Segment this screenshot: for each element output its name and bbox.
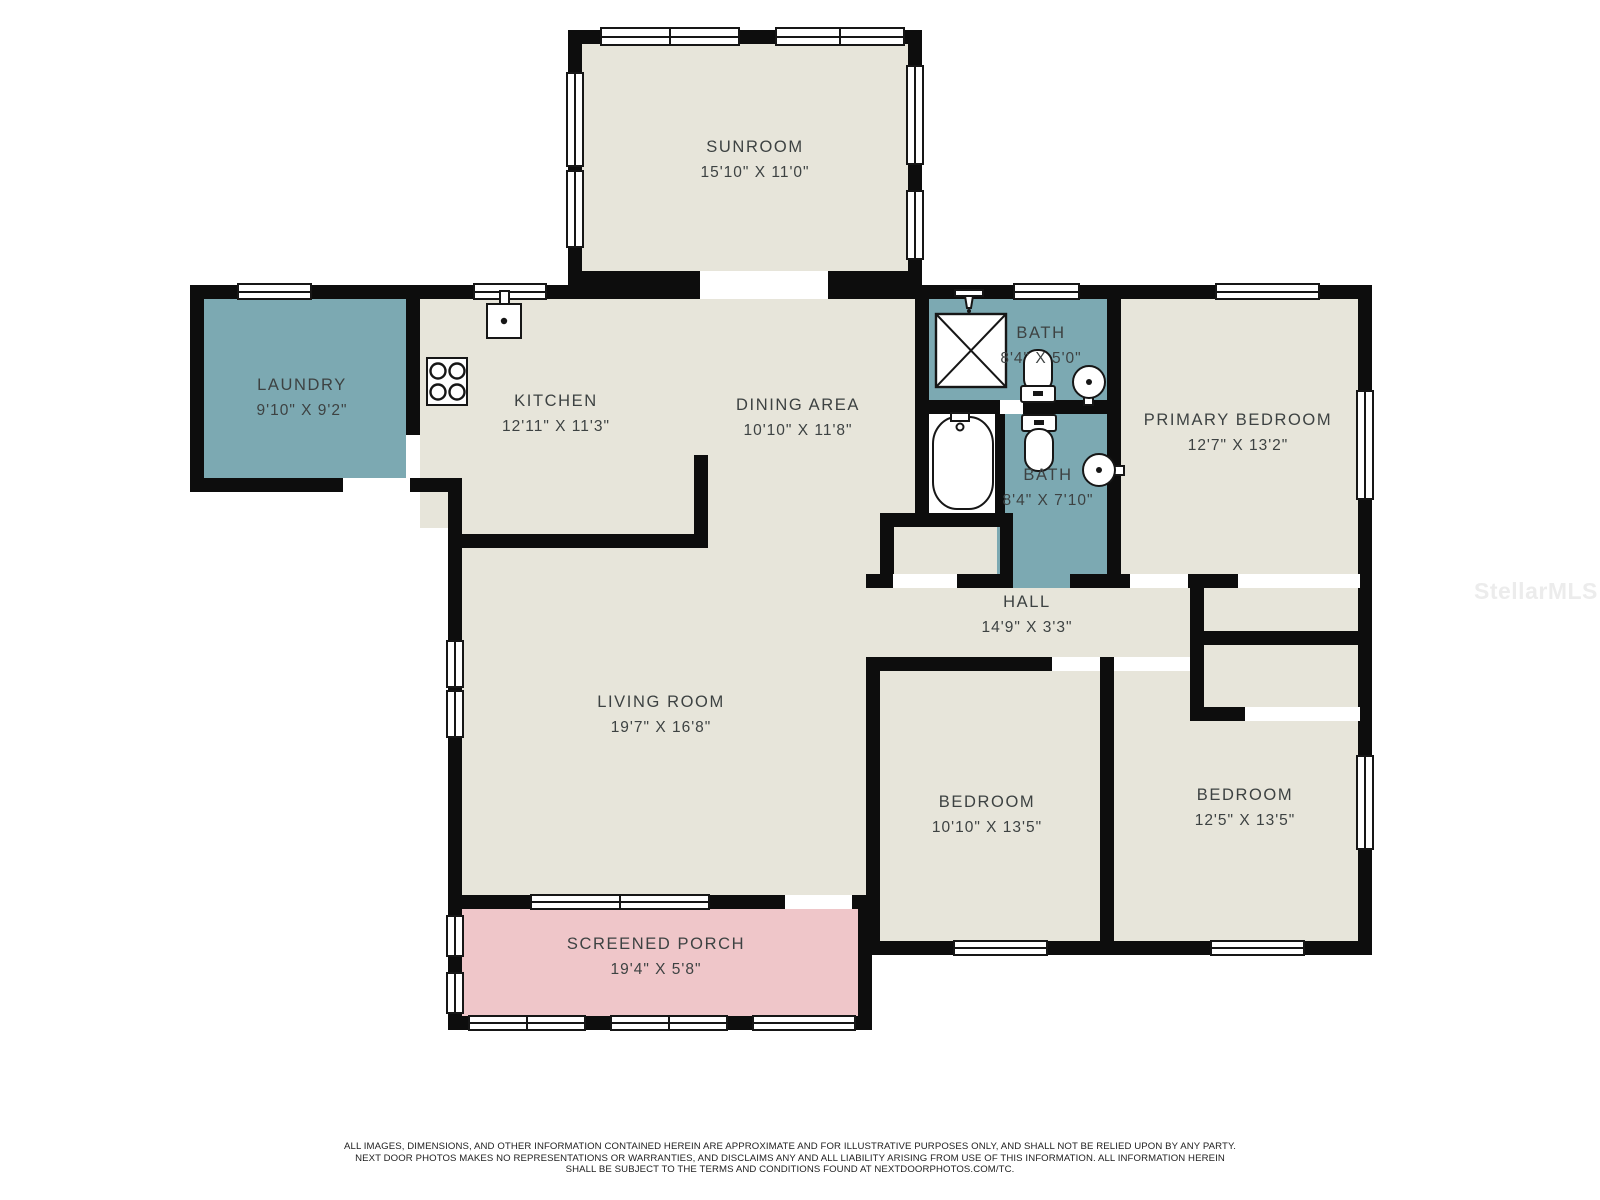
room-dims: 9'10" X 9'2" [257, 402, 348, 420]
window-mullion [619, 896, 621, 908]
room-label-sunroom: SUNROOM15'10" X 11'0" [700, 138, 809, 182]
window-glass-line [574, 74, 576, 165]
window-glass-line [1015, 291, 1078, 293]
door-opening [406, 437, 420, 478]
room-label-bath-main: BATH8'4" X 7'10" [1003, 466, 1094, 510]
wall-segment [457, 534, 708, 548]
door-opening [700, 271, 828, 299]
room-name: KITCHEN [502, 392, 610, 411]
wall-segment [957, 574, 1000, 588]
door-opening [1238, 574, 1360, 588]
room-name: BATH [1003, 466, 1094, 485]
door-opening [1245, 707, 1360, 721]
window-glass-line [454, 917, 456, 955]
window-glass-line [914, 67, 916, 163]
window-glass-line [454, 974, 456, 1012]
room-name: BATH [1000, 324, 1081, 343]
window-symbol [468, 1015, 586, 1031]
window-symbol [1215, 283, 1320, 300]
room-name: SUNROOM [700, 138, 809, 157]
room-dims: 15'10" X 11'0" [700, 164, 809, 182]
room-dims: 10'10" X 11'8" [736, 422, 860, 440]
wall-segment [1358, 285, 1372, 955]
disclaimer-text: ALL IMAGES, DIMENSIONS, AND OTHER INFORM… [0, 1141, 1580, 1176]
room-name: HALL [982, 593, 1073, 612]
closet-1-floor [1202, 588, 1358, 631]
room-label-kitchen: KITCHEN12'11" X 11'3" [502, 392, 610, 436]
window-glass-line [1212, 947, 1303, 949]
door-opening [1052, 657, 1100, 671]
window-glass-line [754, 1022, 854, 1024]
wall-segment [866, 574, 893, 588]
window-glass-line [914, 192, 916, 258]
disclaimer-line-3: SHALL BE SUBJECT TO THE TERMS AND CONDIT… [0, 1164, 1580, 1176]
window-symbol [446, 640, 464, 688]
window-symbol [446, 915, 464, 957]
room-name: DINING AREA [736, 396, 860, 415]
bath-main-doorway [1013, 574, 1070, 588]
window-mullion [526, 1017, 528, 1029]
window-glass-line [1364, 392, 1366, 498]
tub-niche-floor [929, 414, 997, 513]
window-glass-line [454, 692, 456, 736]
window-symbol [446, 690, 464, 738]
room-label-bedroom-2: BEDROOM12'5" X 13'5" [1195, 786, 1296, 830]
room-dims: 12'5" X 13'5" [1195, 812, 1296, 830]
window-symbol [473, 283, 547, 300]
window-mullion [669, 29, 671, 44]
wall-segment [1100, 657, 1114, 955]
window-glass-line [955, 947, 1046, 949]
room-dims: 8'4" X 7'10" [1003, 492, 1094, 510]
wall-segment [880, 513, 1013, 527]
window-mullion [668, 1017, 670, 1029]
room-dims: 12'11" X 11'3" [502, 418, 610, 436]
room-label-bath-top: BATH8'4" X 5'0" [1000, 324, 1081, 368]
wall-segment [1193, 707, 1245, 721]
door-opening [343, 478, 410, 492]
wall-segment [1000, 513, 1013, 588]
room-name: BEDROOM [932, 793, 1042, 812]
room-dims: 10'10" X 13'5" [932, 819, 1042, 837]
wall-segment [866, 657, 1052, 671]
room-dims: 19'4" X 5'8" [567, 961, 745, 979]
door-opening [1114, 657, 1190, 671]
window-symbol [1210, 940, 1305, 956]
door-opening [1130, 574, 1188, 588]
floor-plan: SUNROOM15'10" X 11'0" LAUNDRY9'10" X 9'2… [0, 0, 1600, 1200]
window-symbol [1356, 390, 1374, 500]
wall-segment [1107, 299, 1121, 574]
window-symbol [775, 27, 905, 46]
wall-segment [694, 455, 708, 545]
room-dims: 19'7" X 16'8" [597, 719, 725, 737]
wall-segment [190, 478, 462, 492]
window-symbol [906, 65, 924, 165]
room-name: PRIMARY BEDROOM [1144, 411, 1332, 430]
room-dims: 14'9" X 3'3" [982, 619, 1073, 637]
room-name: SCREENED PORCH [567, 935, 745, 954]
room-name: BEDROOM [1195, 786, 1296, 805]
window-symbol [530, 894, 710, 910]
window-symbol [610, 1015, 728, 1031]
window-symbol [446, 972, 464, 1014]
wall-segment [406, 285, 420, 435]
disclaimer-line-2: NEXT DOOR PHOTOS MAKES NO REPRESENTATION… [0, 1153, 1580, 1165]
window-symbol [1356, 755, 1374, 850]
room-dims: 8'4" X 5'0" [1000, 350, 1081, 368]
window-glass-line [1217, 291, 1318, 293]
stellar-mls-watermark: StellarMLS [1474, 578, 1598, 605]
room-label-screened-porch: SCREENED PORCH19'4" X 5'8" [567, 935, 745, 979]
window-symbol [752, 1015, 856, 1031]
room-dims: 12'7" X 13'2" [1144, 437, 1332, 455]
hall-closet-floor [894, 527, 1000, 574]
room-name: LAUNDRY [257, 376, 348, 395]
door-opening [1000, 400, 1023, 414]
wall-segment [1188, 574, 1238, 588]
room-label-living-room: LIVING ROOM19'7" X 16'8" [597, 693, 725, 737]
window-symbol [237, 283, 312, 300]
window-symbol [953, 940, 1048, 956]
window-glass-line [574, 172, 576, 246]
room-label-laundry: LAUNDRY9'10" X 9'2" [257, 376, 348, 420]
window-symbol [566, 72, 584, 167]
window-glass-line [454, 642, 456, 686]
window-glass-line [1364, 757, 1366, 848]
room-label-hall: HALL14'9" X 3'3" [982, 593, 1073, 637]
window-glass-line [239, 291, 310, 293]
wall-segment [866, 657, 880, 955]
room-label-dining-area: DINING AREA10'10" X 11'8" [736, 396, 860, 440]
wall-segment [1070, 574, 1130, 588]
wall-segment [1202, 631, 1372, 645]
room-label-primary-bedroom: PRIMARY BEDROOM12'7" X 13'2" [1144, 411, 1332, 455]
disclaimer-line-1: ALL IMAGES, DIMENSIONS, AND OTHER INFORM… [0, 1141, 1580, 1153]
window-symbol [566, 170, 584, 248]
window-symbol [1013, 283, 1080, 300]
door-opening [785, 895, 852, 909]
window-symbol [906, 190, 924, 260]
wall-segment [190, 285, 204, 492]
window-symbol [600, 27, 740, 46]
window-mullion [839, 29, 841, 44]
door-opening [893, 574, 957, 588]
room-label-bedroom-1: BEDROOM10'10" X 13'5" [932, 793, 1042, 837]
window-glass-line [475, 291, 545, 293]
wall-segment [1190, 588, 1204, 721]
closet-2-floor [1207, 645, 1358, 707]
room-name: LIVING ROOM [597, 693, 725, 712]
